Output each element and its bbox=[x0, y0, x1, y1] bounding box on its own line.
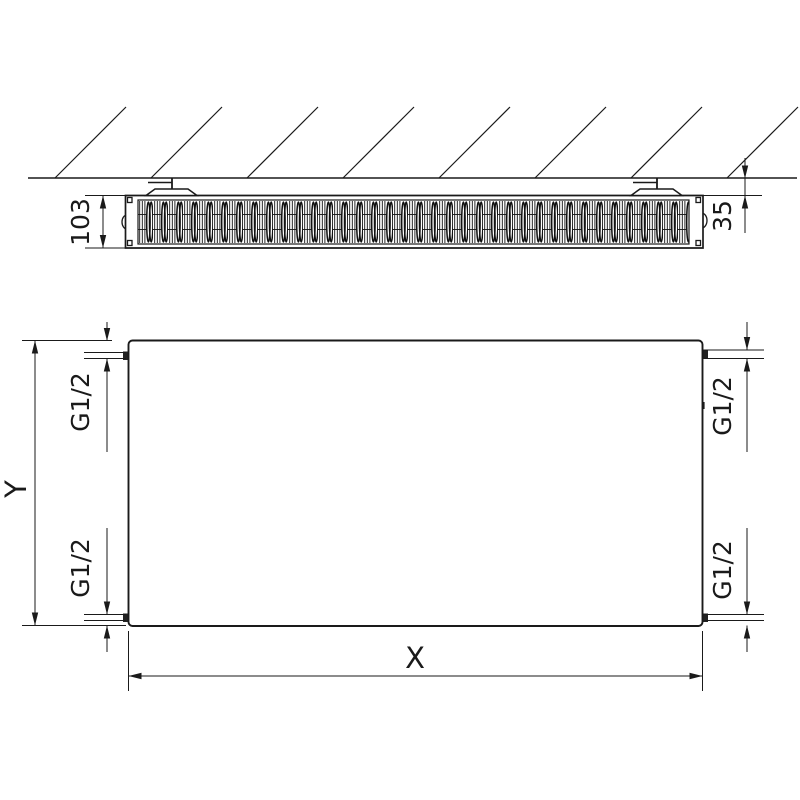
dim-wall-distance: 35 bbox=[698, 158, 762, 233]
wall-distance-label: 35 bbox=[708, 200, 737, 232]
radiator-top-view bbox=[122, 178, 707, 248]
connection-g12-top-right: G1/2 bbox=[705, 322, 765, 452]
dim-width-x: X bbox=[129, 631, 703, 691]
radiator-technical-drawing: 103 35 G1/2 G1 bbox=[0, 0, 800, 800]
connection-g12-bottom-right: G1/2 bbox=[705, 528, 765, 652]
radiator-front-outline bbox=[129, 341, 703, 627]
wall-hatch bbox=[55, 107, 798, 178]
depth-label: 103 bbox=[66, 198, 95, 246]
connection-label: G1/2 bbox=[66, 538, 95, 598]
fin-section bbox=[138, 200, 689, 244]
connection-label: G1/2 bbox=[708, 376, 737, 436]
radiator-front-view bbox=[123, 341, 708, 627]
connection-label: G1/2 bbox=[708, 540, 737, 600]
connection-g12-bottom-left: G1/2 bbox=[66, 528, 126, 652]
mounting-bracket-left bbox=[146, 178, 197, 196]
mounting-bracket-right bbox=[631, 178, 682, 196]
width-label: X bbox=[405, 641, 425, 675]
connection-label: G1/2 bbox=[66, 372, 95, 432]
drawing-canvas: 103 35 G1/2 G1 bbox=[0, 0, 800, 800]
connection-g12-top-left: G1/2 bbox=[66, 322, 126, 452]
height-label: Y bbox=[0, 480, 33, 499]
